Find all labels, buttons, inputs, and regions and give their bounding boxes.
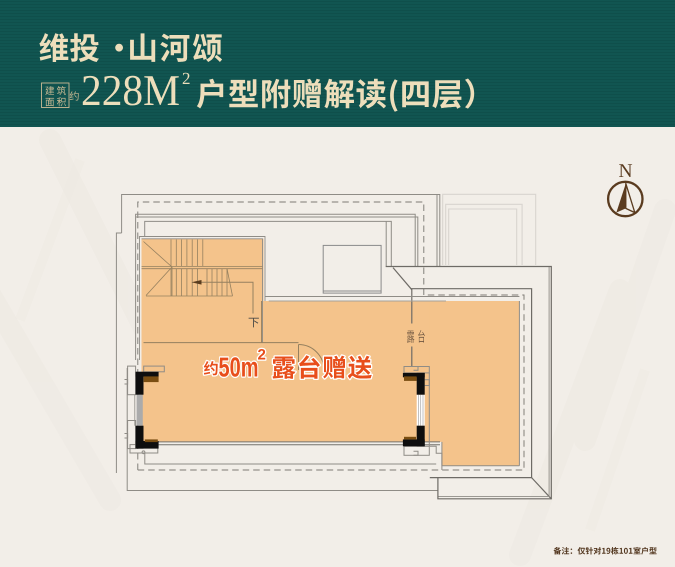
svg-text:50m: 50m: [219, 352, 259, 383]
svg-text:2: 2: [258, 347, 266, 364]
svg-text:2: 2: [182, 69, 191, 88]
svg-text:228M: 228M: [81, 66, 180, 115]
svg-text:N: N: [618, 161, 632, 182]
